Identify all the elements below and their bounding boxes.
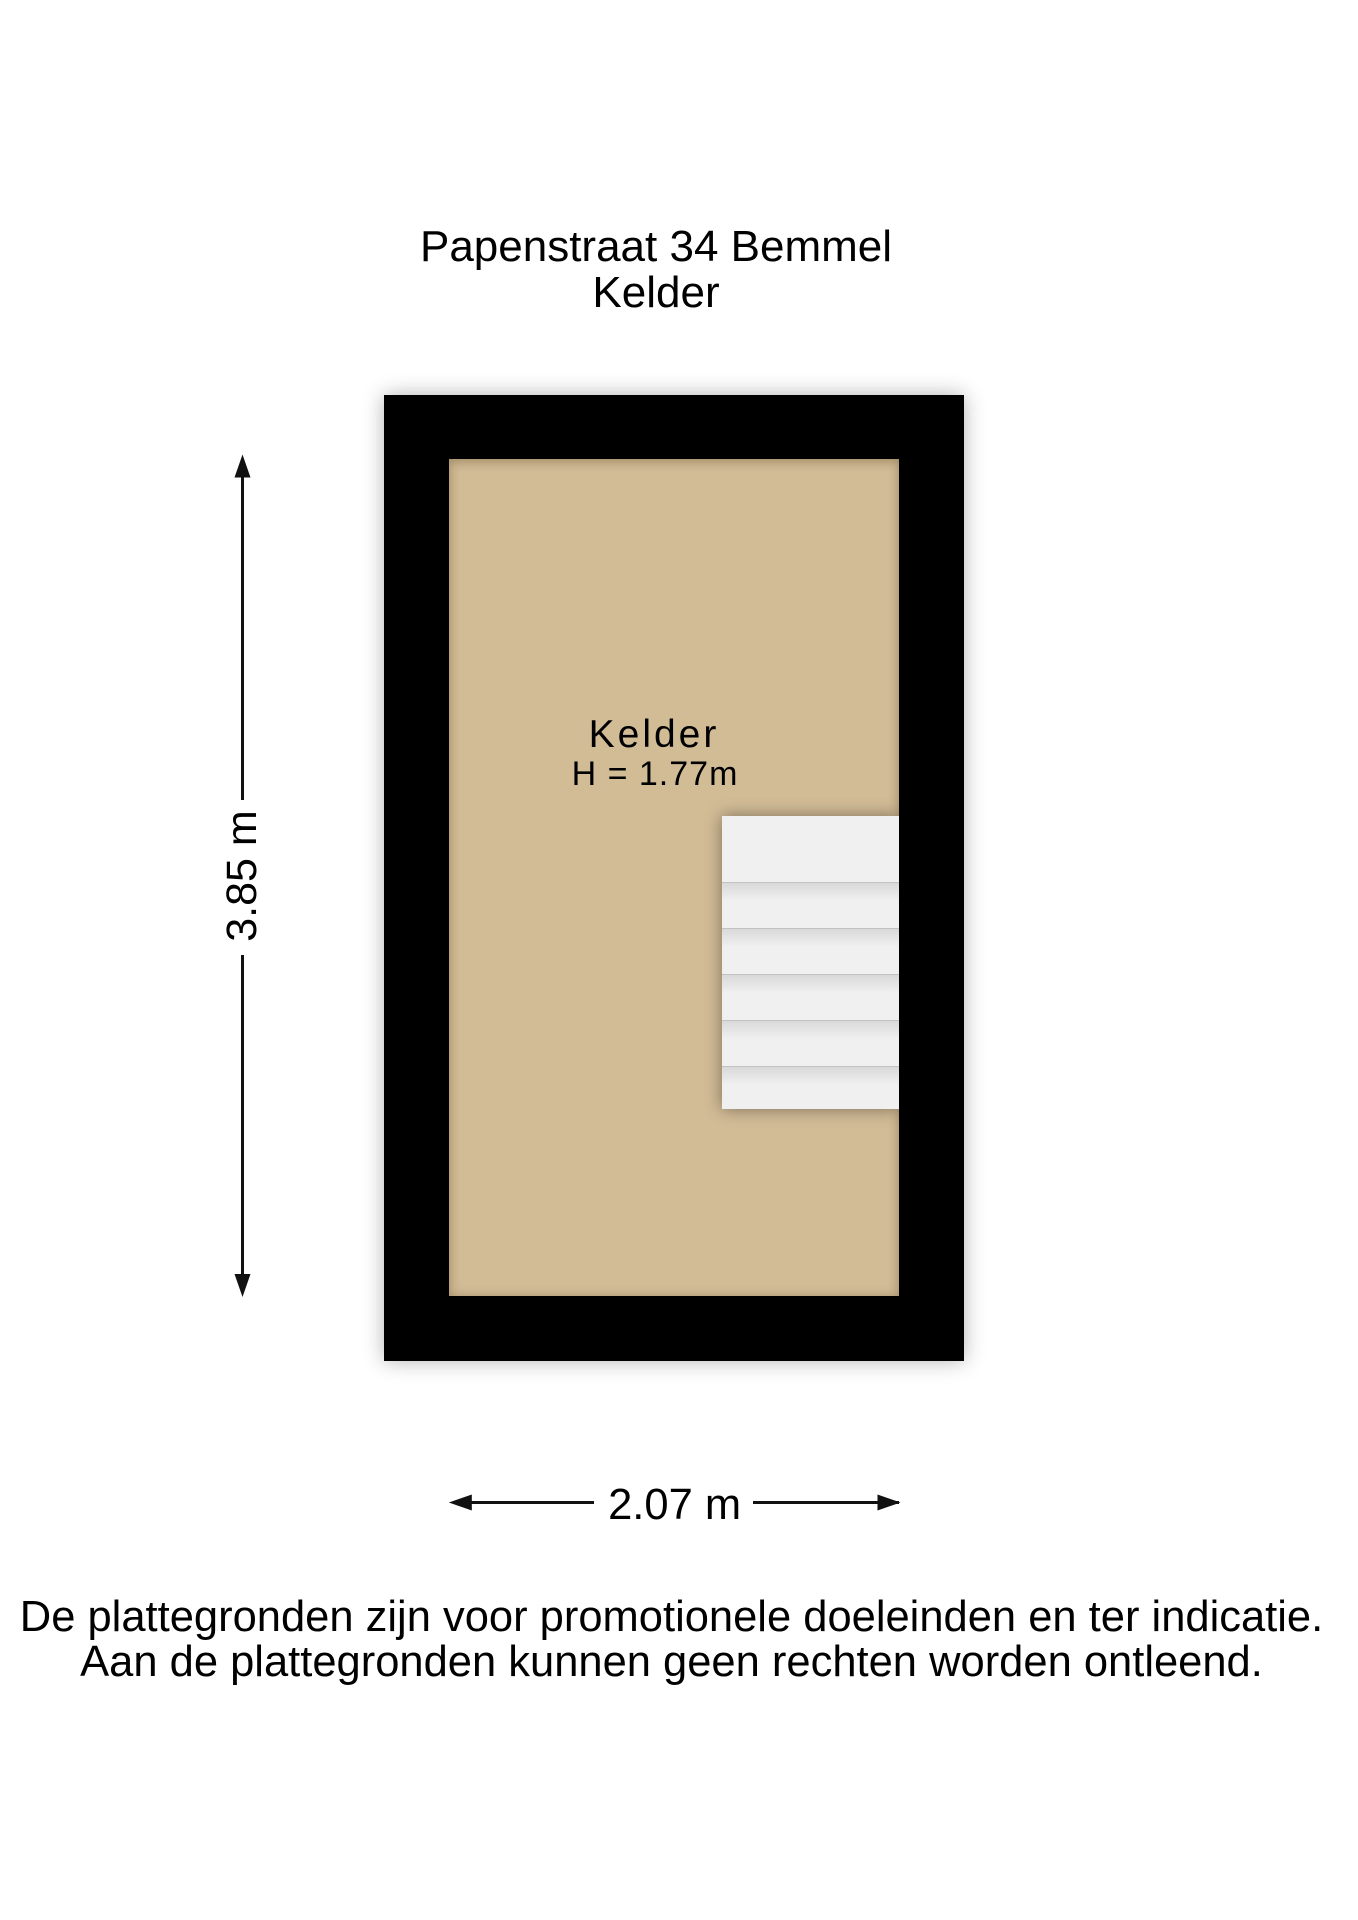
svg-text:3.85 m: 3.85 m	[218, 810, 266, 941]
svg-text:2.07 m: 2.07 m	[608, 1481, 741, 1529]
